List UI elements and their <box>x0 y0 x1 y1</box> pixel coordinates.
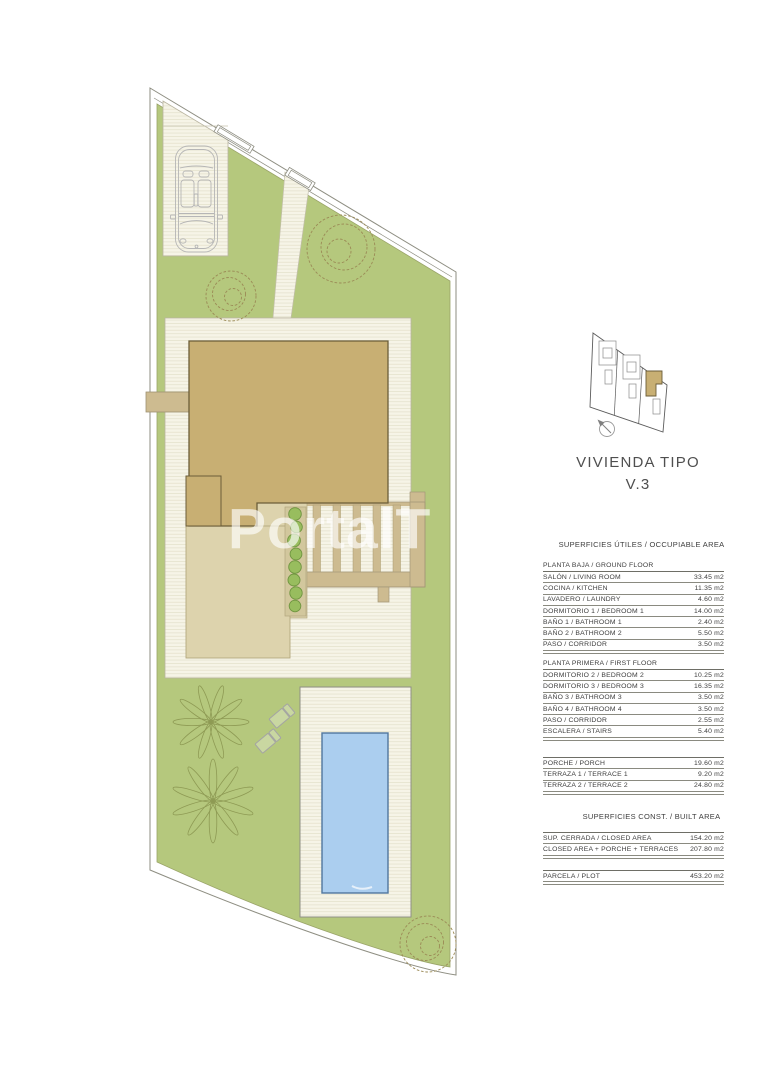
table-row: SUP. CERRADA / CLOSED AREA154.20 m2 <box>543 833 724 844</box>
plot-table: PARCELA / PLOT453.20 m2 <box>543 870 724 885</box>
table-row: BAÑO 2 / BATHROOM 25.50 m2 <box>543 628 724 639</box>
built-area-table: SUP. CERRADA / CLOSED AREA154.20 m2 CLOS… <box>543 832 724 859</box>
plan-title: VIVIENDA TIPO <box>543 452 733 474</box>
pool <box>322 733 388 893</box>
table-row: BAÑO 3 / BATHROOM 33.50 m2 <box>543 693 724 704</box>
table-row: COCINA / KITCHEN11.35 m2 <box>543 583 724 594</box>
table-row: SALÓN / LIVING ROOM33.45 m2 <box>543 572 724 583</box>
table-row: PORCHE / PORCH19.60 m2 <box>543 758 724 769</box>
table-row: TERRAZA 1 / TERRACE 19.20 m2 <box>543 769 724 780</box>
parking-area <box>163 101 228 256</box>
north-arrow-icon <box>598 420 615 437</box>
ground-floor-table: PLANTA BAJA / GROUND FLOOR SALÓN / LIVIN… <box>543 561 724 654</box>
watermark: PortalT <box>228 496 453 562</box>
table-row: BAÑO 4 / BATHROOM 43.50 m2 <box>543 704 724 715</box>
table-row: DORMITORIO 1 / BEDROOM 114.00 m2 <box>543 606 724 617</box>
title-block: VIVIENDA TIPO V.3 <box>543 452 733 496</box>
table-row: CLOSED AREA + PORCHE + TERRACES207.80 m2 <box>543 844 724 855</box>
section-label: PLANTA PRIMERA / FIRST FLOOR <box>543 659 724 669</box>
table-row: PASO / CORRIDOR3.50 m2 <box>543 640 724 651</box>
first-floor-table: PLANTA PRIMERA / FIRST FLOOR DORMITORIO … <box>543 659 724 741</box>
plan-sheet: PortalT VIVIENDA TIPO V.3 SUPERFICIES ÚT… <box>0 0 763 1080</box>
plan-subtitle: V.3 <box>543 474 733 496</box>
table-row: LAVADERO / LAUNDRY4.60 m2 <box>543 595 724 606</box>
table-row: PASO / CORRIDOR2.55 m2 <box>543 715 724 726</box>
key-plan <box>590 333 667 437</box>
table-row: BAÑO 1 / BATHROOM 12.40 m2 <box>543 617 724 628</box>
table-row: DORMITORIO 2 / BEDROOM 210.25 m2 <box>543 670 724 681</box>
table-row: ESCALERA / STAIRS5.40 m2 <box>543 726 724 737</box>
section-label: PLANTA BAJA / GROUND FLOOR <box>543 561 724 571</box>
table-row: PARCELA / PLOT453.20 m2 <box>543 871 724 882</box>
table-row: TERRAZA 2 / TERRACE 224.80 m2 <box>543 781 724 792</box>
entrance-walk <box>146 392 190 412</box>
outdoor-areas-table: PORCHE / PORCH19.60 m2 TERRAZA 1 / TERRA… <box>543 757 724 795</box>
built-area-header: SUPERFICIES CONST. / BUILT AREA <box>543 812 742 821</box>
table-row: DORMITORIO 3 / BEDROOM 316.35 m2 <box>543 681 724 692</box>
occupiable-area-header: SUPERFICIES ÚTILES / OCCUPIABLE AREA <box>543 540 732 549</box>
